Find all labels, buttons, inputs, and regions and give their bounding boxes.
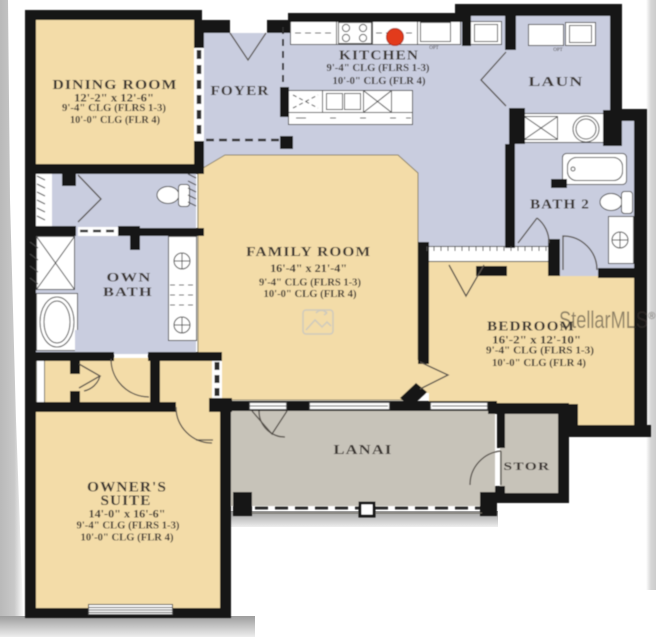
svg-text:14'-0" x 16'-6": 14'-0" x 16'-6": [89, 509, 166, 521]
svg-text:10'-0" CLG (FLR 4): 10'-0" CLG (FLR 4): [81, 533, 174, 544]
svg-text:FAMILY ROOM: FAMILY ROOM: [246, 245, 371, 260]
svg-text:®: ®: [648, 311, 656, 322]
svg-text:9'-4" CLG (FLRS 1-3): 9'-4" CLG (FLRS 1-3): [77, 521, 180, 532]
svg-text:10'-0" CLG (FLR 4): 10'-0" CLG (FLR 4): [492, 358, 586, 369]
svg-text:BATH: BATH: [103, 284, 153, 299]
svg-text:16'-4" x 21'-4": 16'-4" x 21'-4": [270, 263, 347, 275]
svg-text:LANAI: LANAI: [334, 443, 393, 458]
svg-text:StellarMLS: StellarMLS: [559, 307, 648, 334]
svg-text:9'-4" CLG (FLRS 1-3): 9'-4" CLG (FLRS 1-3): [259, 278, 361, 289]
svg-text:FOYER: FOYER: [211, 84, 270, 99]
svg-text:OWN: OWN: [107, 270, 152, 285]
svg-text:LAUN: LAUN: [529, 75, 584, 90]
svg-text:10'-0" CLG (FLR 4): 10'-0" CLG (FLR 4): [264, 289, 357, 300]
svg-text:9'-4" CLG (FLRS 1-3): 9'-4" CLG (FLRS 1-3): [62, 103, 166, 114]
svg-text:9'-4" CLG (FLRS 1-3): 9'-4" CLG (FLRS 1-3): [486, 346, 594, 357]
svg-text:BATH 2: BATH 2: [530, 198, 590, 213]
svg-text:OPT: OPT: [553, 48, 562, 53]
svg-text:10'-0" CLG (FLR 4): 10'-0" CLG (FLR 4): [70, 115, 160, 126]
svg-text:OPT: OPT: [429, 46, 438, 51]
svg-text:SUITE: SUITE: [101, 493, 152, 509]
svg-text:STOR: STOR: [504, 459, 551, 473]
svg-text:10'-0" CLG (FLR 4): 10'-0" CLG (FLR 4): [333, 76, 426, 87]
svg-text:DINING ROOM: DINING ROOM: [53, 78, 178, 93]
svg-text:9'-4" CLG (FLRS 1-3): 9'-4" CLG (FLRS 1-3): [327, 63, 430, 74]
svg-text:KITCHEN: KITCHEN: [339, 49, 419, 64]
